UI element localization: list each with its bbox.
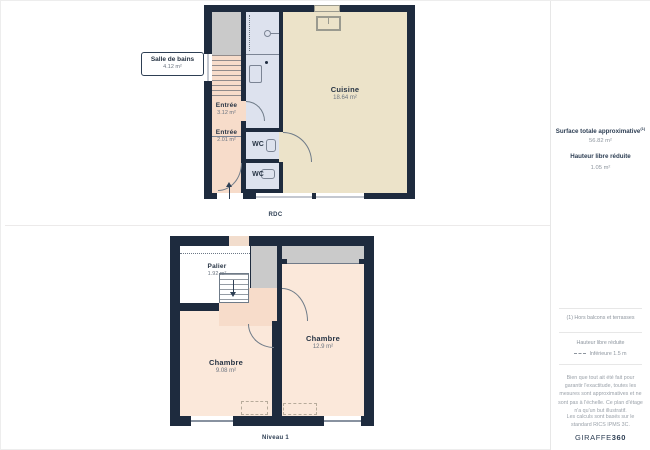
furniture-dashed — [241, 401, 268, 415]
wall-stub — [282, 259, 287, 264]
entrance-opening — [217, 193, 243, 201]
sidebar-divider — [559, 332, 642, 333]
stove-mark — [328, 16, 329, 24]
window — [316, 193, 364, 201]
surface-total-value: 56.82 m² — [553, 138, 648, 144]
stairs — [212, 55, 241, 100]
door-pivot — [265, 61, 268, 64]
window — [324, 416, 361, 426]
window — [204, 54, 212, 81]
floor-caption-niveau1: Niveau 1 — [1, 435, 550, 441]
window — [314, 5, 340, 12]
floorplan-page: Entrée 3.12 m² Entrée 2.01 m² WC WC Cuis… — [0, 0, 650, 450]
wall — [180, 303, 219, 311]
reduced-height-zone — [282, 246, 364, 263]
wall-stub — [359, 259, 364, 264]
standard-text: Les calculs sont basés sur le standard R… — [557, 413, 644, 429]
dashed-line-icon — [574, 353, 586, 354]
surface-total-label: Surface totale approximative(1) — [553, 126, 648, 135]
footnote-marker: (1) — [640, 126, 645, 131]
room-label-chambre-droite: Chambre 12.9 m² — [282, 334, 364, 352]
window — [256, 193, 312, 201]
room-label-wc-2: WC — [246, 171, 270, 178]
room-label-wc-1: WC — [246, 141, 270, 148]
sink-icon — [264, 30, 271, 37]
legend-title: Hauteur libre réduite — [555, 340, 646, 346]
reduced-height-value: 1.05 m² — [553, 165, 648, 171]
height-line — [282, 263, 364, 264]
room-label-entree-1: Entrée 3.12 m² — [208, 102, 245, 118]
legend-row: Inférieure 1.5 m — [553, 351, 648, 357]
dormer — [229, 236, 249, 246]
footnote-text: (1) Hors balcons et terrasses — [555, 315, 646, 321]
wall-divider — [246, 54, 279, 55]
stairs-arrow-head — [230, 292, 236, 297]
floor-plan-rdc: Entrée 3.12 m² Entrée 2.01 m² WC WC Cuis… — [204, 5, 415, 199]
sink-line — [271, 33, 279, 34]
entrance-arrow — [229, 186, 230, 199]
section-divider — [5, 225, 550, 226]
furniture-dashed — [283, 403, 317, 415]
giraffe360-logo: GIRAFFE360 — [551, 433, 650, 442]
sidebar-divider — [559, 364, 642, 365]
room-label-salle-de-bains: Salle de bains 4.12 m² — [141, 52, 204, 76]
sidebar: Surface totale approximative(1) 56.82 m²… — [550, 1, 650, 450]
shower-icon — [249, 65, 262, 83]
reduced-height-label: Hauteur libre réduite — [553, 153, 648, 160]
room-label-chambre-gauche: Chambre 9.08 m² — [180, 358, 272, 376]
reduced-height-zone — [251, 246, 277, 288]
window — [191, 416, 233, 426]
room-chambre-droite — [282, 246, 364, 416]
entrance-arrow-head — [226, 182, 232, 187]
disclaimer-text: Bien que tout ait été fait pour garantir… — [557, 374, 644, 415]
room-label-palier: Palier 1.92 m² — [194, 263, 240, 279]
sidebar-divider — [559, 308, 642, 309]
room-label-entree-2: Entrée 2.01 m² — [208, 129, 245, 145]
reduced-height-zone — [212, 12, 241, 55]
sliding-door — [249, 15, 250, 51]
room-label-cuisine: Cuisine 18.64 m² — [283, 85, 407, 103]
floor-plan-niveau1: Palier 1.92 m² Chambre 12.9 m² Chambre 9… — [170, 236, 374, 426]
floor-caption-rdc: RDC — [1, 212, 550, 218]
